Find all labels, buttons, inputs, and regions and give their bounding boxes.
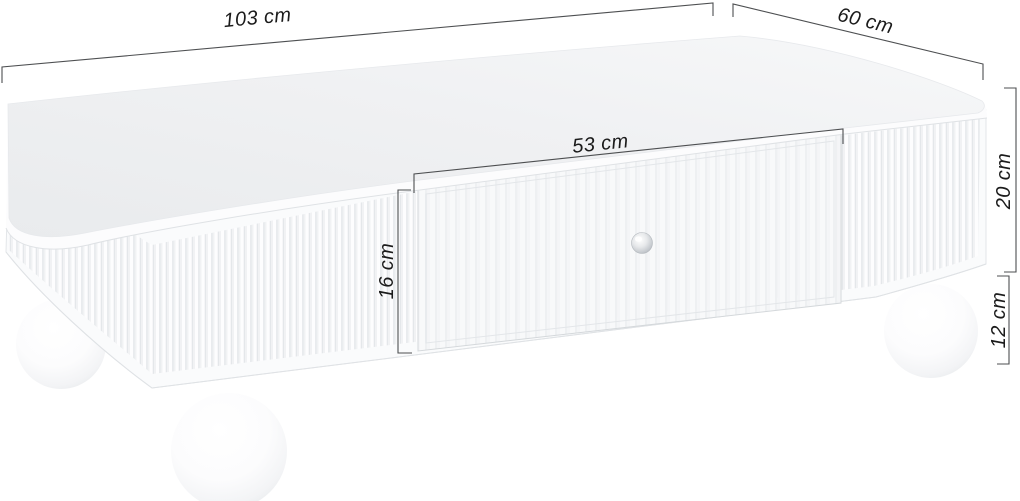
ball-foot-front-left bbox=[171, 393, 287, 501]
drawer-knob-highlight bbox=[635, 236, 642, 242]
product-dimension-diagram: 103 cm 60 cm 53 cm 16 cm 20 cm 12 cm bbox=[0, 0, 1020, 501]
dimension-drawer-height-label: 16 cm bbox=[376, 243, 398, 299]
coffee-table-scene: 103 cm 60 cm 53 cm 16 cm 20 cm 12 cm bbox=[0, 0, 1020, 501]
dimension-leg-height: 12 cm bbox=[988, 276, 1010, 364]
ball-foot-front-right bbox=[884, 284, 978, 378]
drawer-knob bbox=[632, 233, 653, 254]
dimension-overall-depth-label: 60 cm bbox=[835, 4, 895, 39]
dimension-body-height: 20 cm bbox=[993, 88, 1016, 272]
dimension-leg-height-label: 12 cm bbox=[988, 292, 1010, 348]
dimension-body-height-label: 20 cm bbox=[993, 153, 1015, 210]
coffee-table bbox=[6, 36, 987, 501]
dimension-overall-width-label: 103 cm bbox=[223, 4, 293, 32]
